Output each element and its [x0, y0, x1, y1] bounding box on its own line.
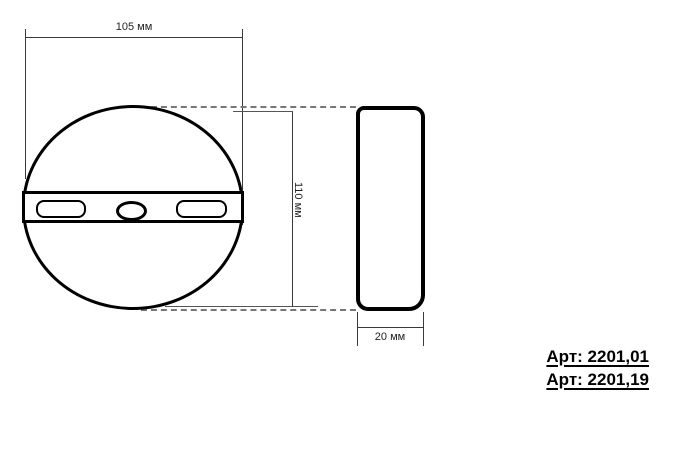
projection-line-top	[141, 106, 356, 108]
width-dimension-line	[25, 37, 243, 38]
width-dimension-label: 105 мм	[25, 21, 243, 33]
depth-dimension-label: 20 мм	[345, 331, 435, 343]
article-numbers: Арт: 2201,01 Арт: 2201,19	[479, 345, 649, 391]
projection-line-bottom	[141, 309, 356, 311]
depth-dimension-line	[357, 327, 423, 328]
article-number-1: Арт: 2201,01	[479, 345, 649, 368]
front-view-center-hole	[116, 201, 147, 221]
height-dimension-tick-bottom	[165, 306, 318, 307]
front-view-left-slot	[36, 200, 86, 218]
article-number-2: Арт: 2201,19	[479, 368, 649, 391]
height-dimension-label: 110 мм	[292, 182, 304, 218]
width-dimension-extension-left	[25, 29, 26, 179]
side-view-profile	[356, 106, 425, 311]
technical-drawing-canvas: 105 мм 110 мм 20 мм Арт: 2201,01 Арт: 22…	[0, 0, 690, 472]
front-view-right-slot	[176, 200, 227, 218]
height-dimension-tick-top	[233, 111, 293, 112]
